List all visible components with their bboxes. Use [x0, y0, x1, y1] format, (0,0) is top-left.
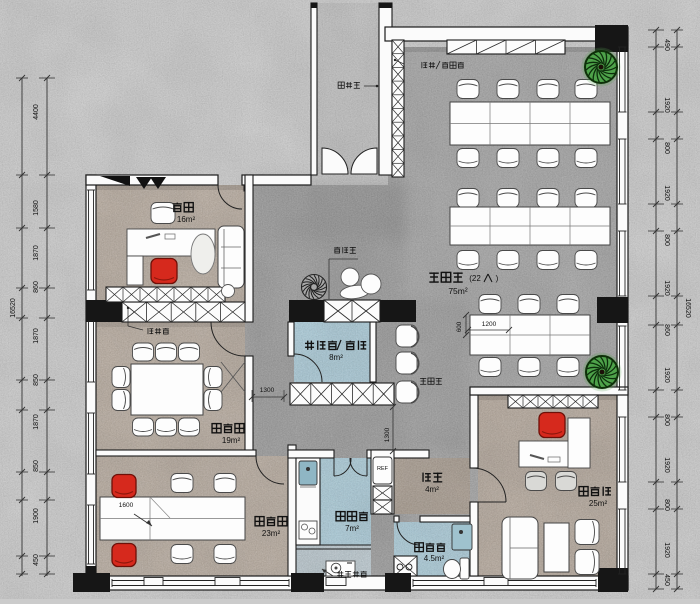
svg-text:REF: REF	[377, 466, 389, 472]
svg-text:19m²: 19m²	[222, 436, 241, 445]
svg-text:450: 450	[663, 574, 670, 586]
svg-text:1870: 1870	[33, 328, 40, 344]
svg-text:450: 450	[33, 554, 40, 566]
svg-text:850: 850	[33, 374, 40, 386]
svg-text:16520: 16520	[684, 298, 691, 318]
svg-text:800: 800	[663, 234, 670, 246]
svg-text:800: 800	[663, 499, 670, 511]
svg-text:850: 850	[33, 460, 40, 472]
svg-text:75m²: 75m²	[448, 286, 468, 296]
svg-text:16520: 16520	[10, 298, 17, 318]
svg-text:1300: 1300	[384, 427, 391, 442]
svg-text:1920: 1920	[663, 185, 670, 201]
svg-text:600: 600	[456, 321, 463, 332]
svg-text:1580: 1580	[33, 200, 40, 216]
svg-text:): )	[496, 274, 499, 283]
svg-text:4400: 4400	[33, 104, 40, 120]
svg-text:16m²: 16m²	[177, 215, 196, 224]
svg-text:1920: 1920	[663, 542, 670, 558]
svg-text:25m²: 25m²	[589, 499, 608, 508]
svg-text:800: 800	[663, 142, 670, 154]
svg-text:4m²: 4m²	[425, 485, 439, 494]
svg-text:490: 490	[663, 39, 670, 51]
svg-text:1870: 1870	[33, 414, 40, 430]
svg-text:4.5m²: 4.5m²	[424, 554, 445, 563]
svg-text:1920: 1920	[663, 280, 670, 296]
svg-text:1920: 1920	[663, 367, 670, 383]
svg-text:800: 800	[663, 414, 670, 426]
svg-text:(22: (22	[469, 274, 481, 283]
svg-text:1600: 1600	[119, 502, 134, 509]
svg-text:8m²: 8m²	[329, 353, 343, 362]
svg-text:1870: 1870	[33, 245, 40, 261]
svg-text:1300: 1300	[260, 387, 275, 394]
svg-text:860: 860	[663, 324, 670, 336]
svg-text:1900: 1900	[33, 508, 40, 524]
svg-text:7m²: 7m²	[345, 524, 359, 533]
svg-text:1920: 1920	[663, 457, 670, 473]
svg-text:23m²: 23m²	[262, 529, 281, 538]
svg-text:1920: 1920	[663, 97, 670, 113]
svg-text:860: 860	[33, 281, 40, 293]
svg-text:1200: 1200	[482, 321, 497, 328]
